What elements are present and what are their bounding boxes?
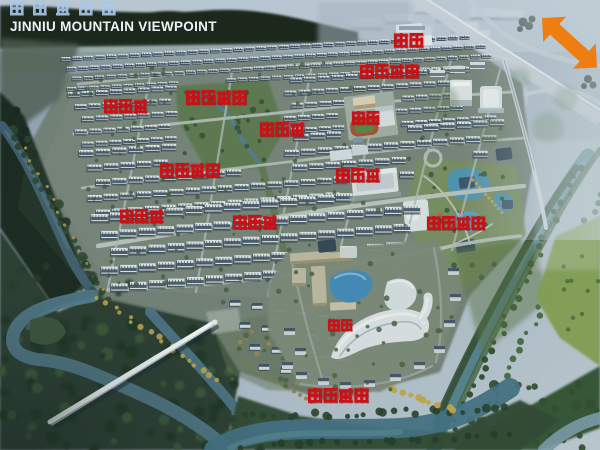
svg-text:JINNIU MOUNTAIN VIEWPOINT: JINNIU MOUNTAIN VIEWPOINT [10,19,217,34]
